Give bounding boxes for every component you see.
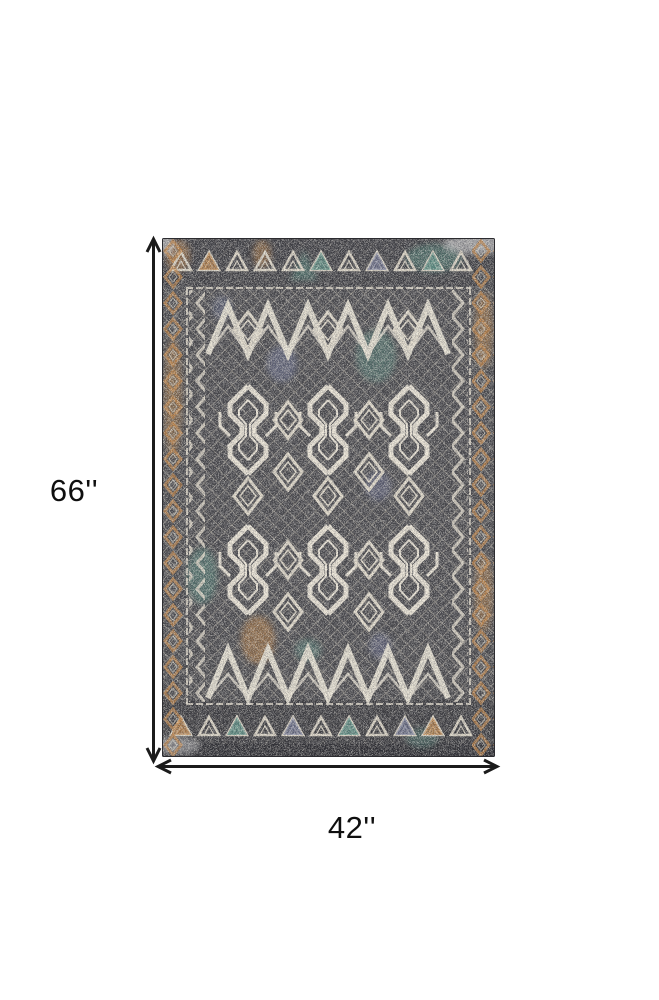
rug-image	[162, 238, 495, 757]
rug-texture-overlay	[162, 238, 495, 757]
width-dimension-arrow	[158, 760, 497, 773]
width-dimension-label: 42''	[302, 810, 402, 846]
height-dimension-arrow	[147, 239, 160, 761]
product-dimension-diagram: 66'' 42''	[0, 0, 659, 1000]
height-dimension-label: 66''	[24, 473, 124, 509]
